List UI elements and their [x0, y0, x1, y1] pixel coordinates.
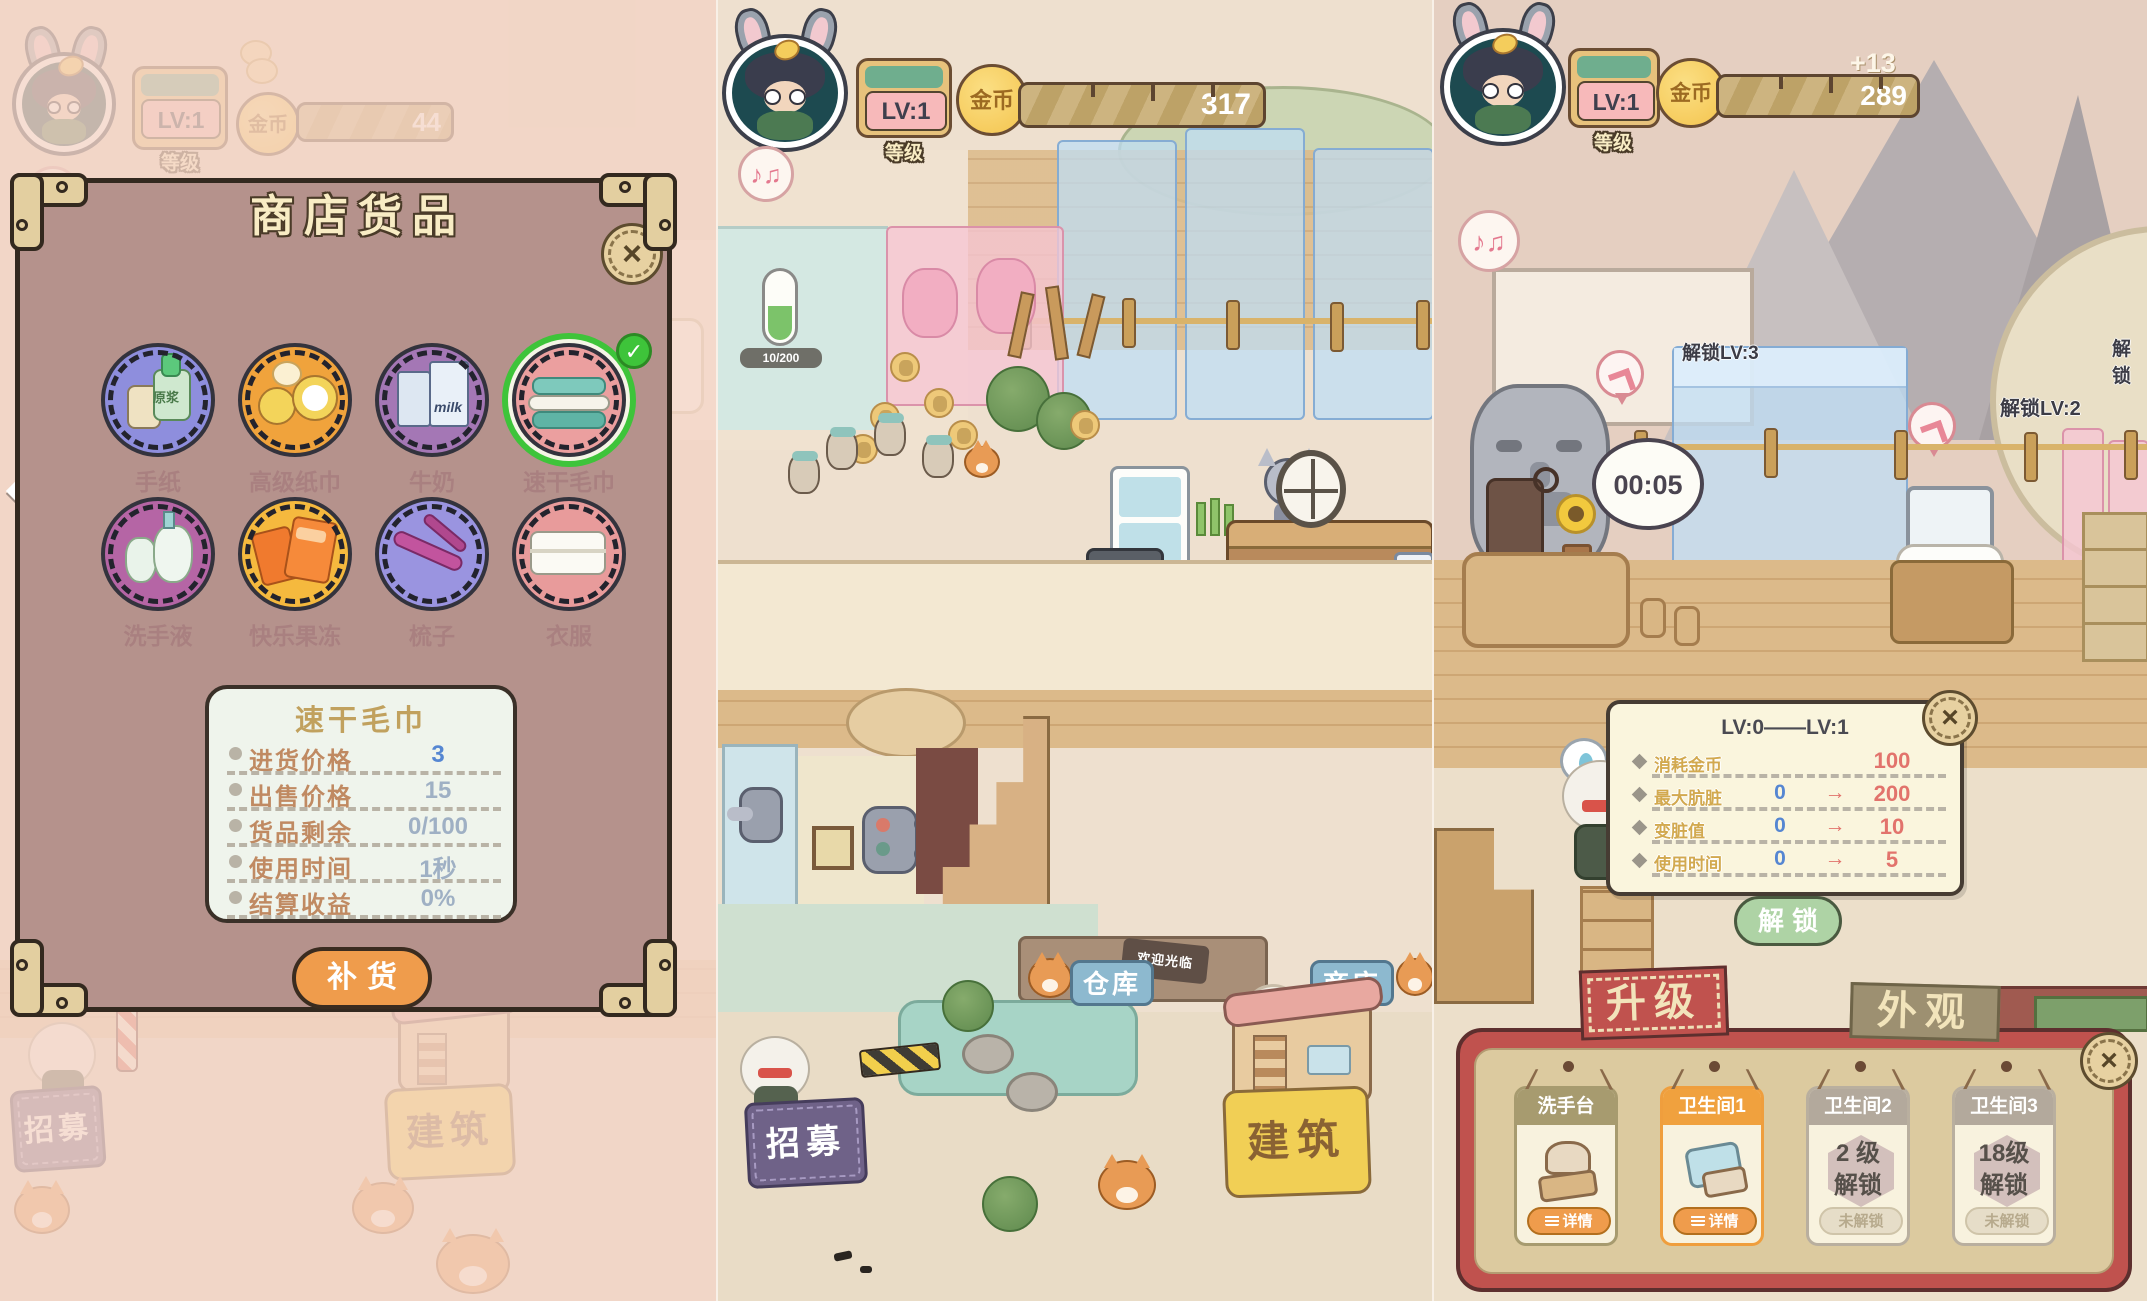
item-label: 衣服 [501, 617, 637, 651]
bottles [1196, 502, 1206, 536]
gold-amount: 317 [1201, 88, 1251, 121]
mid-wall [718, 560, 1432, 700]
upgrade-arrow-icon[interactable] [1908, 402, 1956, 450]
upgrade-dialog: LV:0——LV:1 消耗金币 100 最大肮脏 0 → 200 变脏值 0 →… [1606, 700, 1964, 896]
selected-check-icon: ✓ [616, 333, 652, 369]
details-button[interactable]: 详情 [1527, 1207, 1611, 1235]
unlock-lv3-label: 解锁LV:3 [1682, 338, 1759, 365]
shop-item-comb[interactable] [375, 497, 489, 611]
customer-character [826, 428, 858, 470]
item-label: 牛奶 [364, 463, 500, 497]
bottles [1210, 498, 1220, 536]
shop-item-premium-tissue[interactable] [238, 343, 352, 457]
chef-glasses [758, 1068, 792, 1078]
stool [1640, 598, 1666, 638]
panel-shop-dialog: LV:1 等级 金币 44 ♪♫ 招募 建筑 [0, 0, 716, 1301]
fox-character [1098, 1160, 1156, 1210]
panel-upgrade-scene: 解锁LV:3 解锁LV:2 解锁 00:05 [1432, 0, 2147, 1301]
tab-upgrade[interactable]: 升级 [1579, 965, 1729, 1040]
level-box: LV:1 [856, 58, 952, 138]
coin-gain-float: +13 [1850, 48, 1920, 79]
build-button[interactable]: 建筑 [1222, 1085, 1372, 1198]
shop-item-hand-soap[interactable] [101, 497, 215, 611]
timer-value: 00:05 [1613, 470, 1682, 500]
item-label: 快乐果冻 [227, 617, 363, 651]
teal-wainscot [718, 226, 888, 430]
picture-frame [812, 826, 854, 870]
gold-amount: 289 [1860, 80, 1907, 111]
sink-counter [1890, 560, 2014, 644]
upgrade-row: 变脏值 0 → 10 [1628, 814, 1946, 846]
list-icon [1691, 1215, 1705, 1226]
stool [1674, 606, 1700, 646]
stat-row: 货品剩余 0/100 [223, 811, 501, 847]
stepping-stone [962, 1034, 1014, 1074]
glass-room-blue[interactable] [1313, 148, 1432, 420]
panel-game-scene: 10/200 [716, 0, 1432, 1301]
gold-bar: 317 [1018, 82, 1266, 128]
detail-title: 速干毛巾 [209, 697, 513, 739]
lockers [2082, 512, 2147, 662]
gauge-label: 10/200 [740, 348, 822, 368]
card-toilet-3[interactable]: 卫生间3 18级 解锁 未解锁 [1952, 1086, 2056, 1246]
item-label: 手纸 [90, 463, 226, 497]
restock-button[interactable]: 补货 [292, 947, 432, 1009]
tab-appearance[interactable]: 外观 [1849, 982, 2000, 1042]
fox-mascot [1396, 958, 1432, 996]
close-icon[interactable]: × [2080, 1032, 2138, 1090]
shelf [1580, 886, 1654, 980]
level-label: 等级 [870, 138, 938, 165]
upgrade-arrow-icon[interactable] [1596, 350, 1644, 398]
level-badge: LV:1 [865, 91, 947, 131]
locked-button: 未解锁 [1965, 1207, 2049, 1235]
sink-icon-base [1537, 1169, 1598, 1203]
shop-item-clothes[interactable] [512, 497, 626, 611]
upper-floor-band [718, 690, 1432, 748]
stat-row: 出售价格 15 [223, 775, 501, 811]
rope-fence [1624, 444, 2147, 450]
customer-character [874, 414, 906, 456]
glass-room-locked[interactable] [1672, 346, 1908, 568]
capacity-gauge [762, 268, 798, 346]
list-icon [1545, 1215, 1559, 1226]
customer-character [922, 436, 954, 478]
stat-row: 进货价格 3 [223, 739, 501, 775]
customer-character [788, 452, 820, 494]
round-window [1276, 450, 1346, 528]
item-icon-text: 原浆 [153, 387, 179, 406]
shop-item-happy-jelly[interactable] [238, 497, 352, 611]
locked-button: 未解锁 [1819, 1207, 1903, 1235]
unlock-button[interactable]: 解锁 [1734, 896, 1842, 946]
stat-row: 使用时间 1秒 [223, 847, 501, 883]
item-label: 高级纸巾 [227, 463, 363, 497]
game-composite: LV:1 等级 金币 44 ♪♫ 招募 建筑 [0, 0, 2147, 1301]
music-icon[interactable]: ♪♫ [738, 146, 794, 202]
item-detail-card: 速干毛巾 进货价格 3 出售价格 15 货品剩余 0/100 使用时间 1秒 结… [205, 685, 517, 923]
level-label: 等级 [1580, 128, 1646, 155]
item-icon-text: milk [434, 399, 462, 415]
fox-customer [964, 446, 1000, 478]
gold-bar: 289 [1716, 74, 1920, 118]
level-box: LV:1 [1568, 48, 1660, 128]
stat-row: 结算收益 0% [223, 883, 501, 919]
unlock-word: 解锁 [1809, 1165, 1907, 1200]
dialog-title: 商店货品 [0, 180, 716, 244]
item-label: 速干毛巾 [501, 463, 637, 497]
recruit-button[interactable]: 招募 [744, 1097, 868, 1189]
music-icon[interactable]: ♪♫ [1458, 210, 1520, 272]
table [1462, 552, 1630, 648]
shop-item-toilet-paper[interactable]: 原浆 [101, 343, 215, 457]
shop-goods-dialog: × 原浆 milk [15, 178, 672, 1012]
card-toilet-1[interactable]: 卫生间1 详情 [1660, 1086, 1764, 1246]
dirt-hand-icon[interactable] [924, 388, 954, 418]
upgrade-row: 最大肮脏 0 → 200 [1628, 781, 1946, 813]
unlock-partial-label: 解锁 [2112, 334, 2147, 388]
upgrade-row: 使用时间 0 → 5 [1628, 847, 1946, 879]
upgrade-row: 消耗金币 100 [1628, 748, 1946, 780]
unlock-level: 2 级 [1809, 1133, 1907, 1168]
item-label: 洗手液 [90, 617, 226, 651]
upgrade-title: LV:0——LV:1 [1610, 716, 1960, 740]
timer-bubble: 00:05 [1592, 438, 1704, 530]
card-sink[interactable]: 洗手台 详情 [1514, 1086, 1618, 1246]
glass-room-blue[interactable] [1057, 140, 1177, 420]
dirt-hand-icon[interactable] [1070, 410, 1100, 440]
xp-bar [1577, 56, 1651, 78]
pipe-wall-teal [722, 744, 798, 912]
item-label: 梳子 [364, 617, 500, 651]
card-toilet-2[interactable]: 卫生间2 2 级 解锁 未解锁 [1806, 1086, 1910, 1246]
unlock-word: 解锁 [1955, 1165, 2053, 1200]
details-button[interactable]: 详情 [1673, 1207, 1757, 1235]
shop-item-quick-dry-towel[interactable] [512, 343, 626, 457]
ink-marks [860, 1266, 872, 1273]
dirt-hand-icon[interactable] [890, 352, 920, 382]
wood-sticks [1010, 286, 1110, 364]
stepping-stone [1006, 1072, 1058, 1112]
glass-room-blue[interactable] [1185, 128, 1305, 420]
unlock-level: 18级 [1955, 1133, 2053, 1168]
close-icon[interactable]: × [1922, 690, 1978, 746]
shop-item-milk[interactable]: milk [375, 343, 489, 457]
unlock-lv2-label: 解锁LV:2 [2000, 392, 2081, 421]
level-badge: LV:1 [1577, 81, 1655, 121]
warehouse-sign[interactable]: 仓库 [1070, 960, 1154, 1006]
fox-mascot [1028, 958, 1072, 998]
roof-green [2034, 996, 2147, 1032]
xp-bar [865, 66, 943, 88]
